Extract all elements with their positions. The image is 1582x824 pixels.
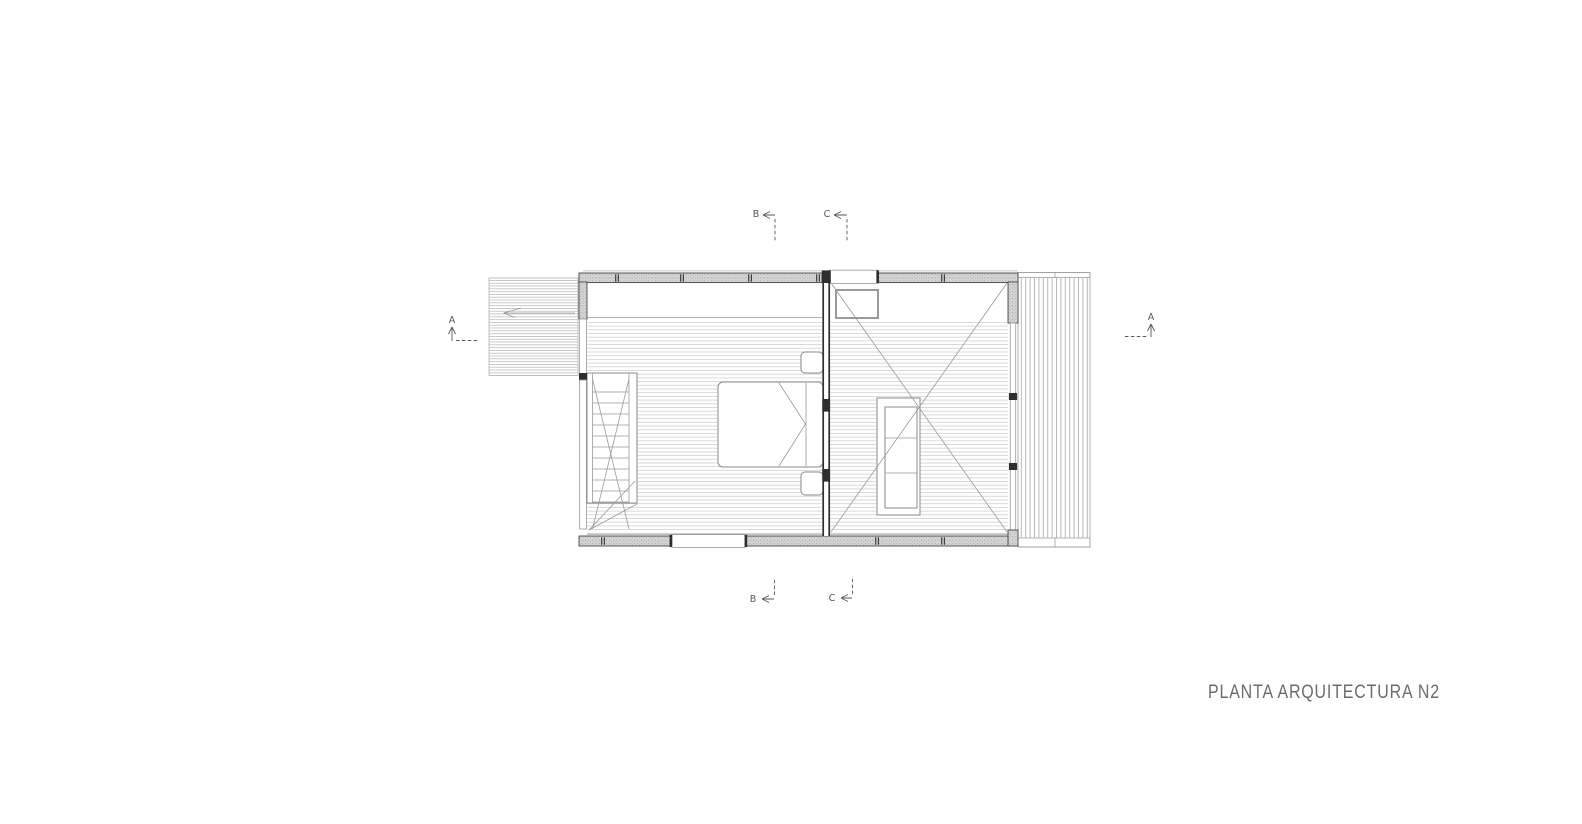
svg-text:C: C bbox=[829, 593, 836, 604]
section-arrow-up-icon bbox=[449, 327, 456, 341]
wall-top-right-segment bbox=[878, 273, 1018, 283]
section-marker-a-right: A bbox=[1125, 312, 1155, 337]
terrace-edge-board-top bbox=[1018, 273, 1090, 278]
svg-text:A: A bbox=[1148, 312, 1155, 323]
terrace-edge-board-bottom bbox=[1018, 538, 1090, 547]
section-marker-b-bottom: B bbox=[750, 577, 775, 605]
wall-bottom-left-segment bbox=[579, 536, 672, 546]
terrace-deck bbox=[1018, 273, 1090, 548]
svg-text:B: B bbox=[753, 209, 760, 220]
svg-text:A: A bbox=[449, 315, 456, 326]
nightstand-lower bbox=[801, 472, 823, 495]
wall-middle bbox=[822, 270, 831, 536]
window-left-lower bbox=[580, 380, 587, 529]
window-right-mullion-lower bbox=[1009, 463, 1017, 470]
plan-title: PLANTA ARQUITECTURA N2 bbox=[1208, 682, 1440, 704]
skylight-opening bbox=[836, 290, 878, 318]
window-right-mullion-upper bbox=[1009, 393, 1017, 400]
drawing-sheet: B C B C A A PLANTA ARQUIT bbox=[0, 0, 1582, 824]
section-marker-c-top: C bbox=[824, 209, 847, 242]
section-marker-c-bottom: C bbox=[829, 576, 853, 604]
section-arrow-left-icon bbox=[763, 212, 775, 219]
section-arrow-left-icon bbox=[841, 595, 852, 602]
window-top bbox=[829, 270, 878, 283]
section-arrow-up-icon bbox=[1148, 324, 1155, 337]
window-right bbox=[1010, 323, 1015, 530]
section-arrow-left-icon bbox=[762, 596, 774, 603]
section-marker-b-top: B bbox=[753, 209, 775, 242]
window-bottom bbox=[672, 535, 745, 548]
entry-deck bbox=[489, 278, 578, 376]
svg-text:B: B bbox=[750, 594, 757, 605]
wall-bottom-right-segment bbox=[745, 536, 1010, 546]
nightstand-upper bbox=[801, 352, 823, 373]
wall-right-corner-post-top bbox=[1008, 282, 1018, 323]
window-left-upper bbox=[580, 319, 587, 375]
svg-text:C: C bbox=[824, 209, 831, 220]
bed bbox=[718, 382, 823, 467]
wall-right-corner-post-bottom bbox=[1008, 530, 1018, 546]
wall-left-corner-post bbox=[579, 282, 587, 319]
wall-left-mid-post bbox=[579, 373, 587, 380]
section-arrow-left-icon bbox=[834, 212, 847, 219]
section-marker-a-left: A bbox=[449, 315, 479, 341]
